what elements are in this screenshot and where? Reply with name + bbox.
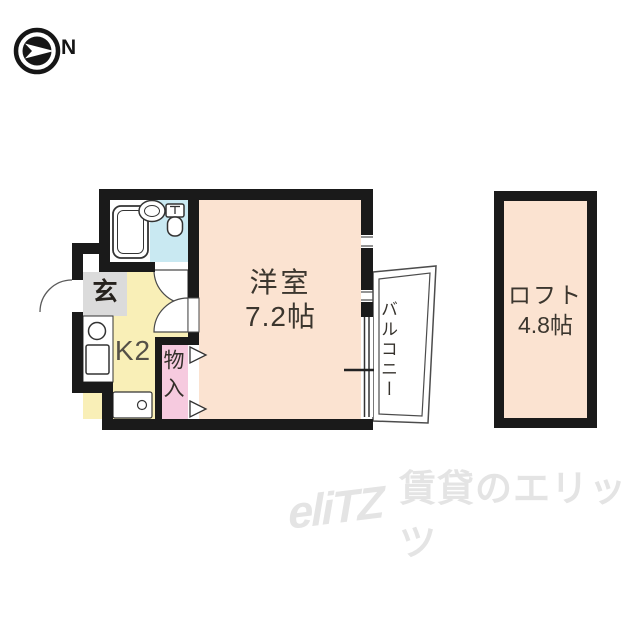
- watermark-brand-text: 賃貸のエリッツ: [399, 458, 640, 566]
- entrance-label: 玄: [83, 280, 127, 305]
- sink-icon: [139, 201, 165, 222]
- main-room-name: 洋室: [200, 269, 361, 297]
- loft-room: [494, 191, 597, 428]
- north-label: N: [61, 37, 77, 58]
- floorplan-canvas: N 洋室 7.2帖 ロフト 4.8帖 玄 K2 物入 バルコニー eliTZ 賃…: [0, 0, 640, 640]
- loft-size: 4.8帖: [494, 314, 597, 337]
- watermark-logo: eliTZ: [288, 476, 383, 540]
- watermark: eliTZ 賃貸のエリッツ: [288, 450, 640, 566]
- storage-label: 物入: [162, 349, 183, 405]
- room-door-leaf: [188, 298, 199, 332]
- washer-pan-icon: [113, 392, 152, 418]
- balcony-label: バルコニー: [379, 300, 396, 400]
- kitchen-label: K2: [100, 337, 166, 365]
- compass-icon: [16, 30, 58, 72]
- entrance-door-arc: [40, 280, 72, 312]
- toilet-icon: [166, 204, 184, 236]
- main-room-size: 7.2帖: [200, 303, 361, 331]
- loft-name: ロフト: [494, 284, 597, 307]
